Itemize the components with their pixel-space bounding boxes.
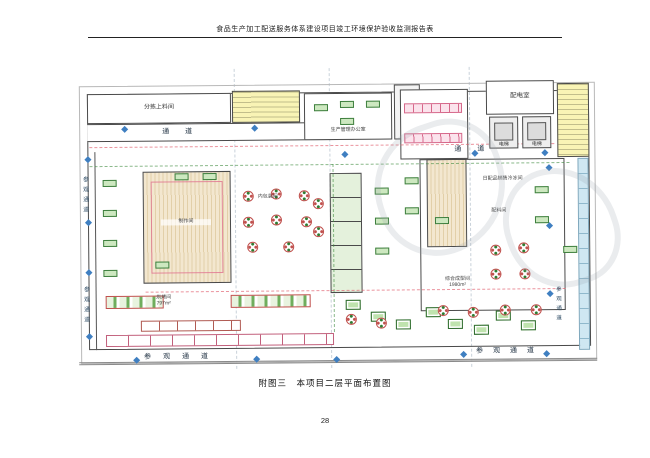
work-table <box>247 242 258 253</box>
work-table <box>301 216 312 227</box>
elevator-left: 电梯 <box>489 116 518 148</box>
machine-unit <box>396 319 411 329</box>
visitor-corridor-right: 参观通道 <box>554 276 561 334</box>
work-bench <box>375 188 389 195</box>
machine-unit <box>521 320 536 330</box>
elevator-right: 电梯 <box>522 116 551 148</box>
header-rule <box>88 37 562 38</box>
room-power-distribution-label: 配电室 <box>498 92 542 100</box>
work-table <box>283 241 294 252</box>
header-title: 食品生产加工配送服务体系建设项目竣工环境保护验收监测报告表 <box>0 24 650 34</box>
work-bench <box>103 270 117 277</box>
work-table <box>243 217 254 228</box>
central-rooms-strip <box>330 173 363 293</box>
visitor-corridor-bottom-1: 参 观 通 道 <box>144 353 213 362</box>
room-making-label: 制作间 <box>161 219 211 225</box>
work-table <box>518 242 529 253</box>
work-table <box>490 245 501 256</box>
work-bench <box>375 218 389 225</box>
work-table <box>531 304 542 315</box>
work-table <box>313 226 324 237</box>
work-bench <box>375 248 389 255</box>
visitor-corridor-left-1: 参观通道 <box>80 165 87 227</box>
visitor-corridor-bottom-2: 参 观 通 道 <box>476 347 538 356</box>
stair-top-right <box>557 83 590 157</box>
room-sorting-feed-label: 分拣上料间 <box>109 104 209 112</box>
work-bench <box>435 217 449 224</box>
work-table <box>500 304 511 315</box>
work-table <box>313 198 324 209</box>
elevator-right-label: 电梯 <box>523 140 550 147</box>
room-inner-packaging-label: 内包装间 <box>243 194 293 200</box>
work-bench <box>535 186 549 193</box>
work-table <box>376 318 387 329</box>
toilet-stalls <box>404 103 462 114</box>
conveyor-line <box>106 333 334 347</box>
toilet-stalls <box>404 133 462 144</box>
document-page: 食品生产加工配送服务体系建设项目竣工环境保护验收监测报告表 分拣上料间 通 道 … <box>0 0 650 458</box>
machine-unit <box>474 325 489 335</box>
floor-plan: 分拣上料间 通 道 生产管理办公室 配电室 电梯 电梯 通 道 <box>74 66 602 381</box>
corridor-top-label: 通 道 <box>162 128 199 136</box>
work-table <box>519 268 530 279</box>
oven-bench <box>231 294 311 308</box>
work-bench <box>103 180 117 187</box>
machine-unit <box>448 319 463 329</box>
work-table <box>438 305 449 316</box>
room-composite-forming-label: 综合成型间 1980m² <box>425 277 489 289</box>
room-production-office-label: 生产管理办公室 <box>310 128 386 134</box>
work-table <box>271 214 282 225</box>
work-bench <box>175 173 189 180</box>
room-ingredient-label: 配料间 <box>479 208 519 214</box>
work-bench <box>203 173 217 180</box>
work-bench <box>405 207 419 214</box>
work-bench <box>563 246 577 253</box>
work-bench <box>405 177 419 184</box>
work-bench <box>155 261 169 268</box>
curtain-wall-strip <box>577 158 590 350</box>
work-bench <box>103 240 117 247</box>
pink-outline <box>151 181 224 274</box>
work-bench <box>535 216 549 223</box>
stair-top-center <box>232 90 300 123</box>
work-table <box>346 314 357 325</box>
equipment-box-row <box>141 320 241 332</box>
figure-caption: 附图三 本项目二层平面布置图 <box>0 377 650 389</box>
work-table <box>468 307 479 318</box>
machine-unit <box>346 300 361 310</box>
work-bench <box>103 210 117 217</box>
room-baking-label: 烘烤间 797m² <box>142 295 186 307</box>
visitor-corridor-left-2: 参观通道 <box>81 275 88 337</box>
page-number: 28 <box>0 416 650 425</box>
room-daily-cold-label: 日配品销售冷冻间 <box>463 176 543 182</box>
work-table <box>490 269 501 280</box>
work-table <box>299 190 310 201</box>
elevator-left-label: 电梯 <box>490 140 517 147</box>
